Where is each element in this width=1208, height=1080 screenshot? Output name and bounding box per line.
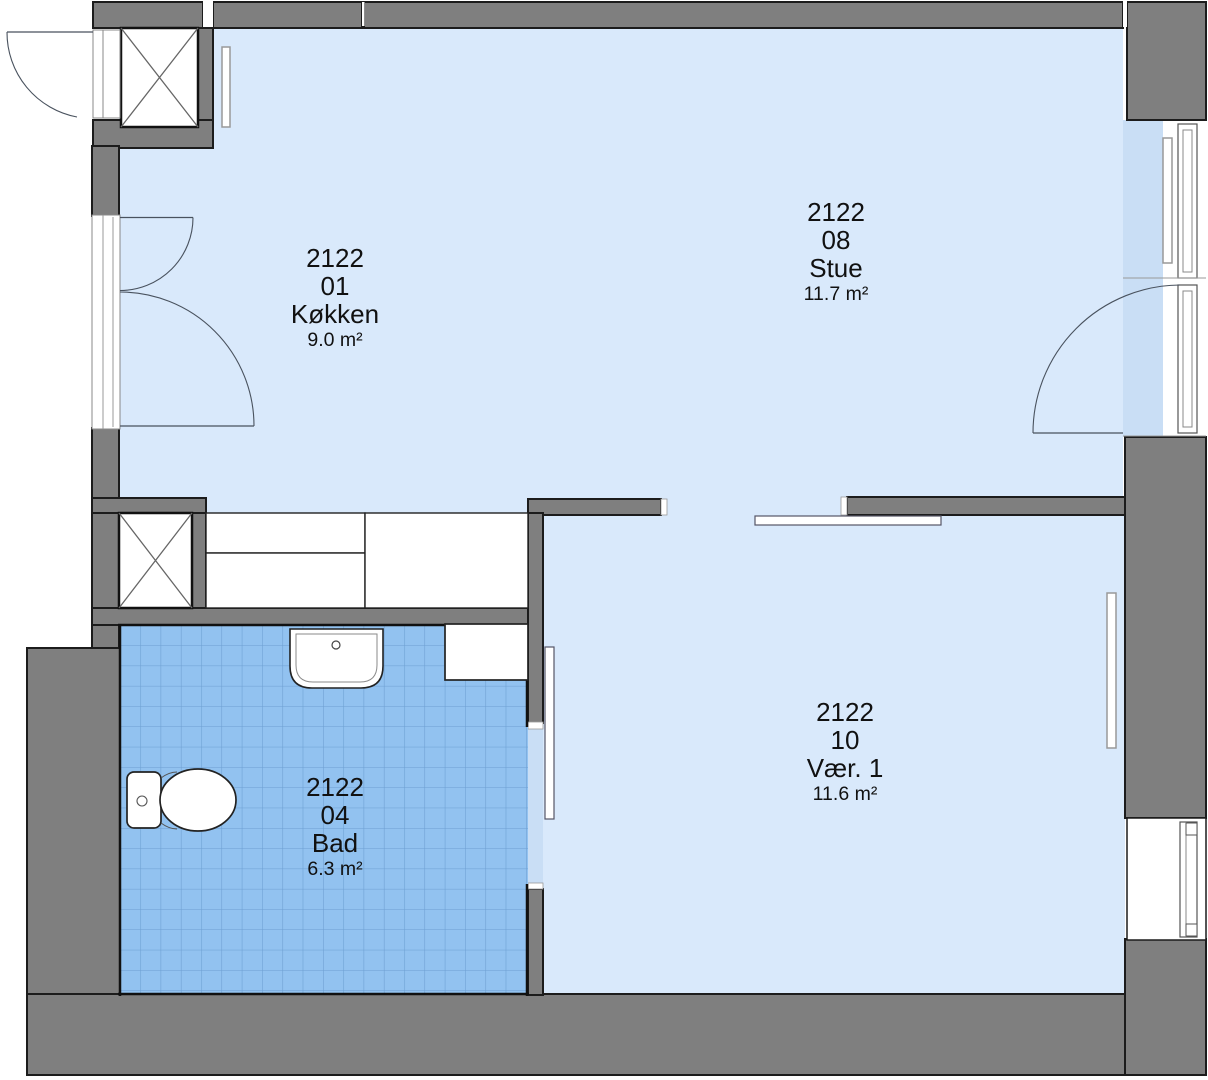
sink: [290, 629, 383, 688]
wall-bathroom-right-lower: [528, 889, 543, 995]
wall-joint: [362, 2, 365, 26]
entrance-door: [7, 30, 120, 118]
toilet-bowl: [160, 769, 236, 831]
stue-vaer1-sliding-door: [755, 516, 941, 525]
wall-bottom: [27, 994, 1206, 1075]
radiator-kitchen: [222, 47, 230, 127]
bathroom-sliding-door: [545, 647, 554, 819]
wall-stue-vaer1: [847, 497, 1125, 515]
toilet-flush-button: [137, 796, 147, 806]
wall-hall-top: [528, 499, 661, 515]
vaer1-window: [1127, 818, 1206, 940]
radiator-stue: [1163, 138, 1172, 263]
wall-outer-left-block: [27, 648, 120, 996]
kitchen-tall-unit: [365, 513, 528, 608]
floor-plan-drawing: [0, 0, 1208, 1080]
wall-band-left: [92, 498, 206, 513]
shaft-mid-left: [119, 513, 192, 608]
wall-joint: [203, 0, 213, 27]
wall-left-upper: [92, 146, 119, 216]
kitchen-counters: [206, 513, 528, 608]
wall-cap: [528, 722, 543, 729]
radiator-vaer1: [1107, 593, 1116, 748]
wall-top-right: [364, 2, 1123, 28]
wall-top-mid: [213, 2, 362, 28]
kitchen-counter-upper: [206, 513, 365, 553]
wall-corner-topright: [1127, 2, 1206, 120]
bathroom: [118, 624, 554, 996]
floor-plan: 2122 01 Køkken 9.0 m² 2122 08 Stue 11.7 …: [0, 0, 1208, 1080]
wall-cap: [841, 497, 847, 515]
wall-shaft2-right: [192, 513, 206, 608]
sink-faucet: [332, 641, 340, 649]
wall-top-left: [93, 2, 203, 28]
shaft-top-left: [121, 28, 198, 127]
vaer1-floor: [543, 515, 1125, 994]
kitchen-counter-lower: [206, 553, 365, 608]
kitchen-stue-floor: [119, 28, 1123, 515]
wall-joint: [1123, 0, 1127, 27]
bathroom-cabinet: [445, 624, 528, 680]
wall-bathroom-right-upper: [528, 513, 543, 723]
wall-cap: [528, 883, 543, 889]
wall-cap: [661, 499, 667, 515]
wall-right-lower: [1125, 939, 1206, 1075]
toilet: [127, 769, 236, 831]
bathroom-door-threshold: [526, 726, 543, 886]
wall-right-upper: [1125, 437, 1206, 818]
wall-band-bottom: [92, 608, 543, 625]
entrance-door-swing: [7, 32, 77, 117]
